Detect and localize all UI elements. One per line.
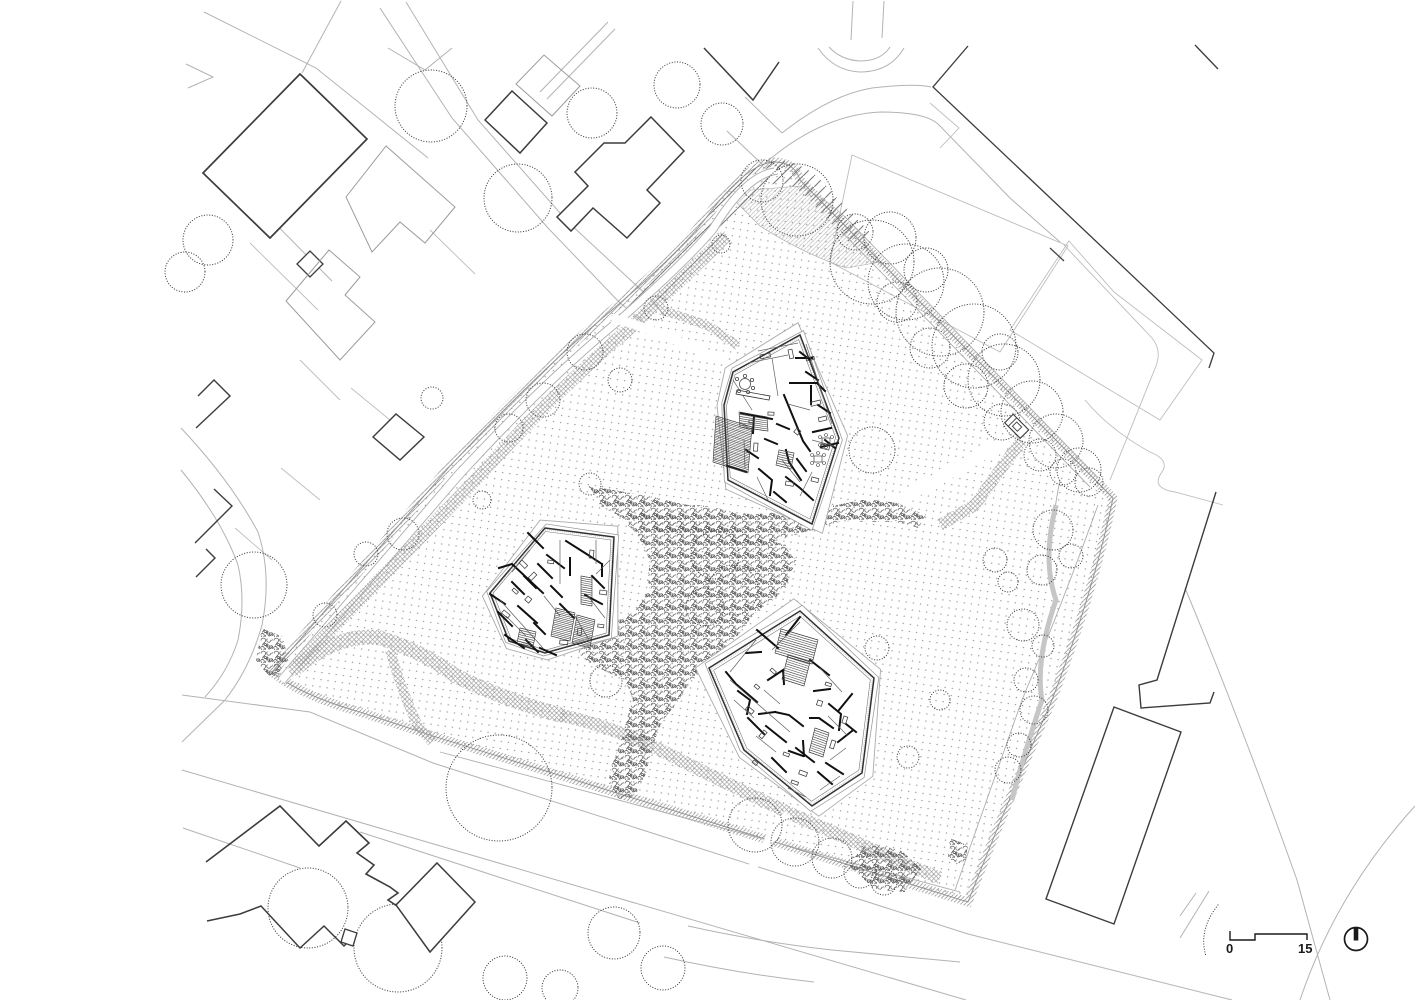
svg-text:15: 15	[1298, 941, 1312, 956]
svg-text:0: 0	[1226, 941, 1233, 956]
